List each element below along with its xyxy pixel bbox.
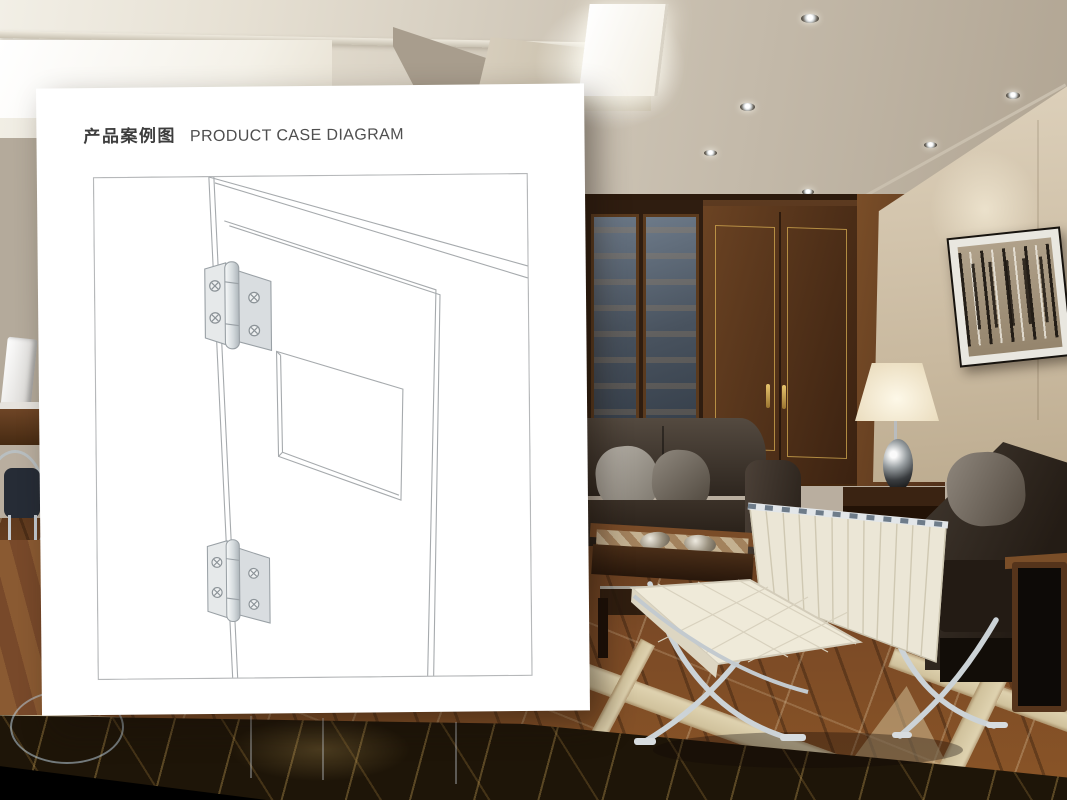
stool-seat — [4, 468, 40, 518]
door-hinge-diagram — [93, 173, 533, 680]
artwork-panel — [958, 237, 1063, 356]
artwork-bars — [965, 256, 1055, 330]
wood-floor-strip — [0, 540, 44, 715]
ceiling-cove-panel — [578, 4, 668, 96]
recessed-spotlight-icon — [1006, 92, 1020, 99]
recessed-spotlight-icon — [704, 150, 717, 156]
door-handle — [782, 385, 786, 409]
recessed-spotlight-icon — [924, 142, 937, 148]
lamp-stem — [894, 421, 897, 441]
desk — [0, 409, 44, 445]
side-table — [1012, 562, 1067, 712]
lamp-base — [883, 439, 913, 491]
barcelona-chair — [598, 492, 1018, 782]
title-chinese: 产品案例图 — [83, 126, 176, 146]
chair-shadow — [653, 732, 963, 768]
floor-reflection-streak — [250, 716, 252, 778]
recessed-spotlight-icon — [801, 14, 819, 23]
product-case-card: 产品案例图PRODUCT CASE DIAGRAM — [36, 83, 590, 715]
floor-reflection-streak — [322, 718, 324, 780]
framed-artwork — [947, 226, 1067, 367]
door-seam — [779, 212, 781, 478]
door-handle — [766, 384, 770, 408]
floor-reflection-streak — [455, 722, 457, 784]
door-panel-trim — [787, 227, 847, 459]
recessed-spotlight-icon — [740, 103, 755, 111]
card-title: 产品案例图PRODUCT CASE DIAGRAM — [83, 119, 404, 147]
title-english: PRODUCT CASE DIAGRAM — [190, 126, 404, 145]
scene: 产品案例图PRODUCT CASE DIAGRAM — [0, 0, 1067, 800]
